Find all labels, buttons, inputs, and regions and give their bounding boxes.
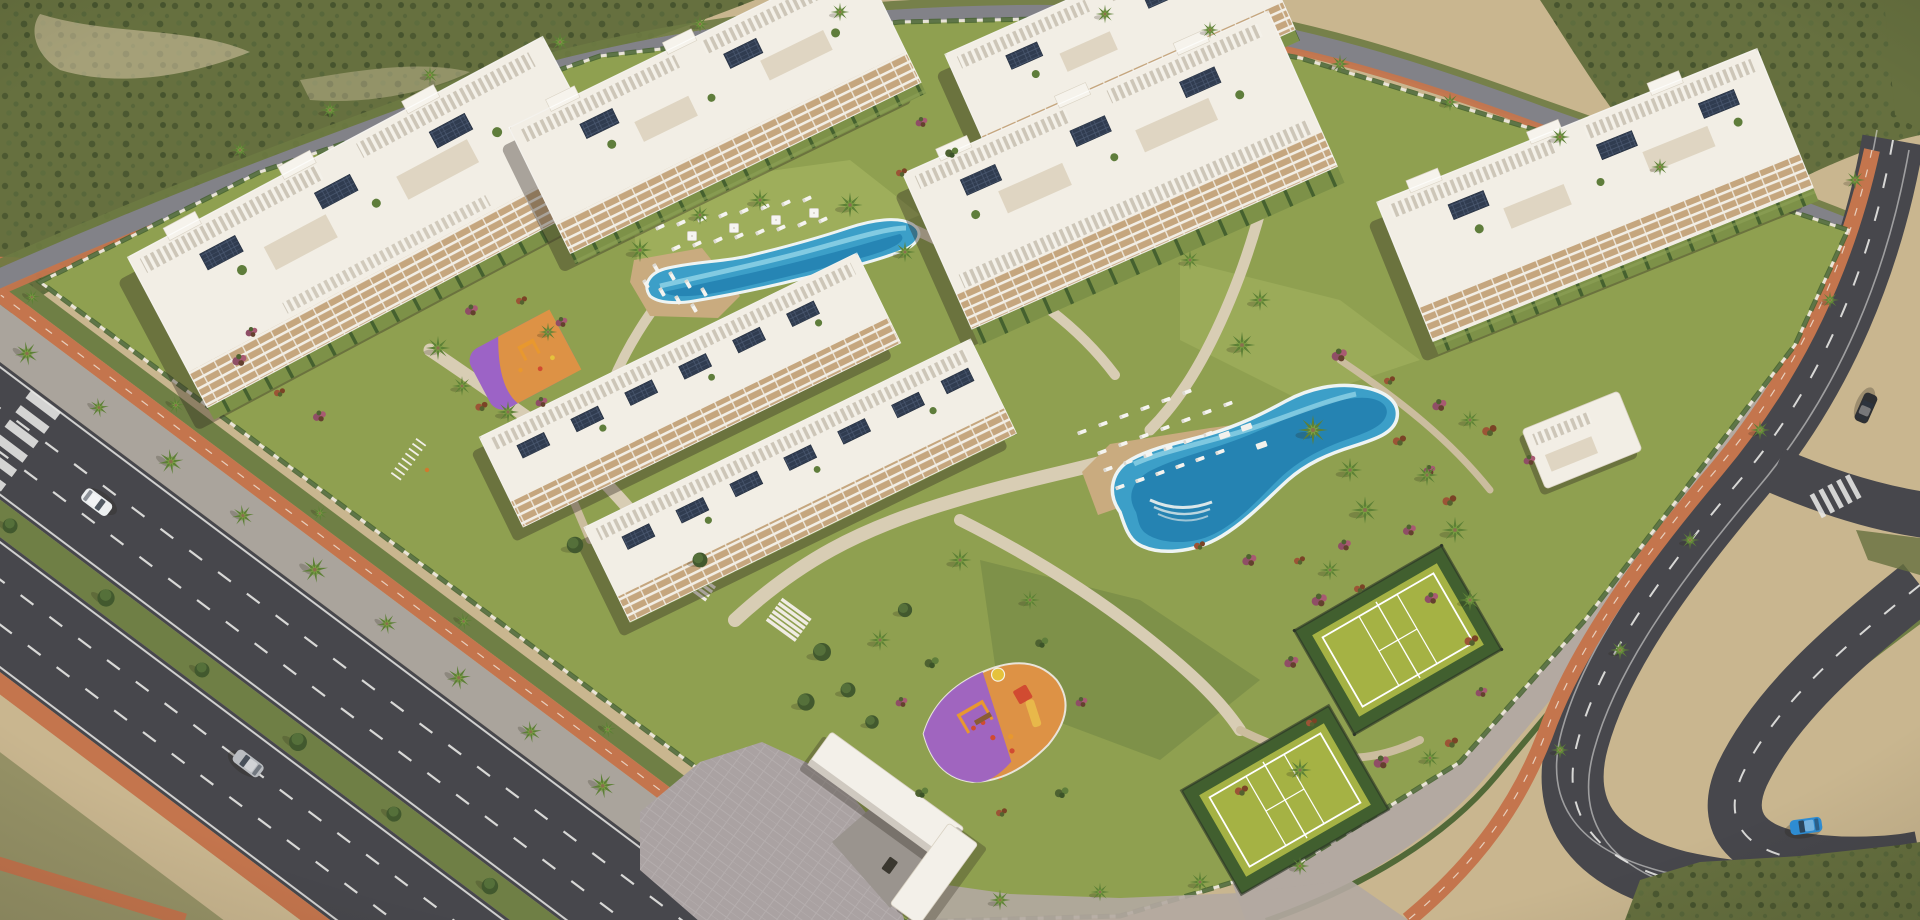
vignette — [0, 0, 1920, 920]
scene-canvas — [0, 0, 1920, 920]
aerial-render — [0, 0, 1920, 920]
